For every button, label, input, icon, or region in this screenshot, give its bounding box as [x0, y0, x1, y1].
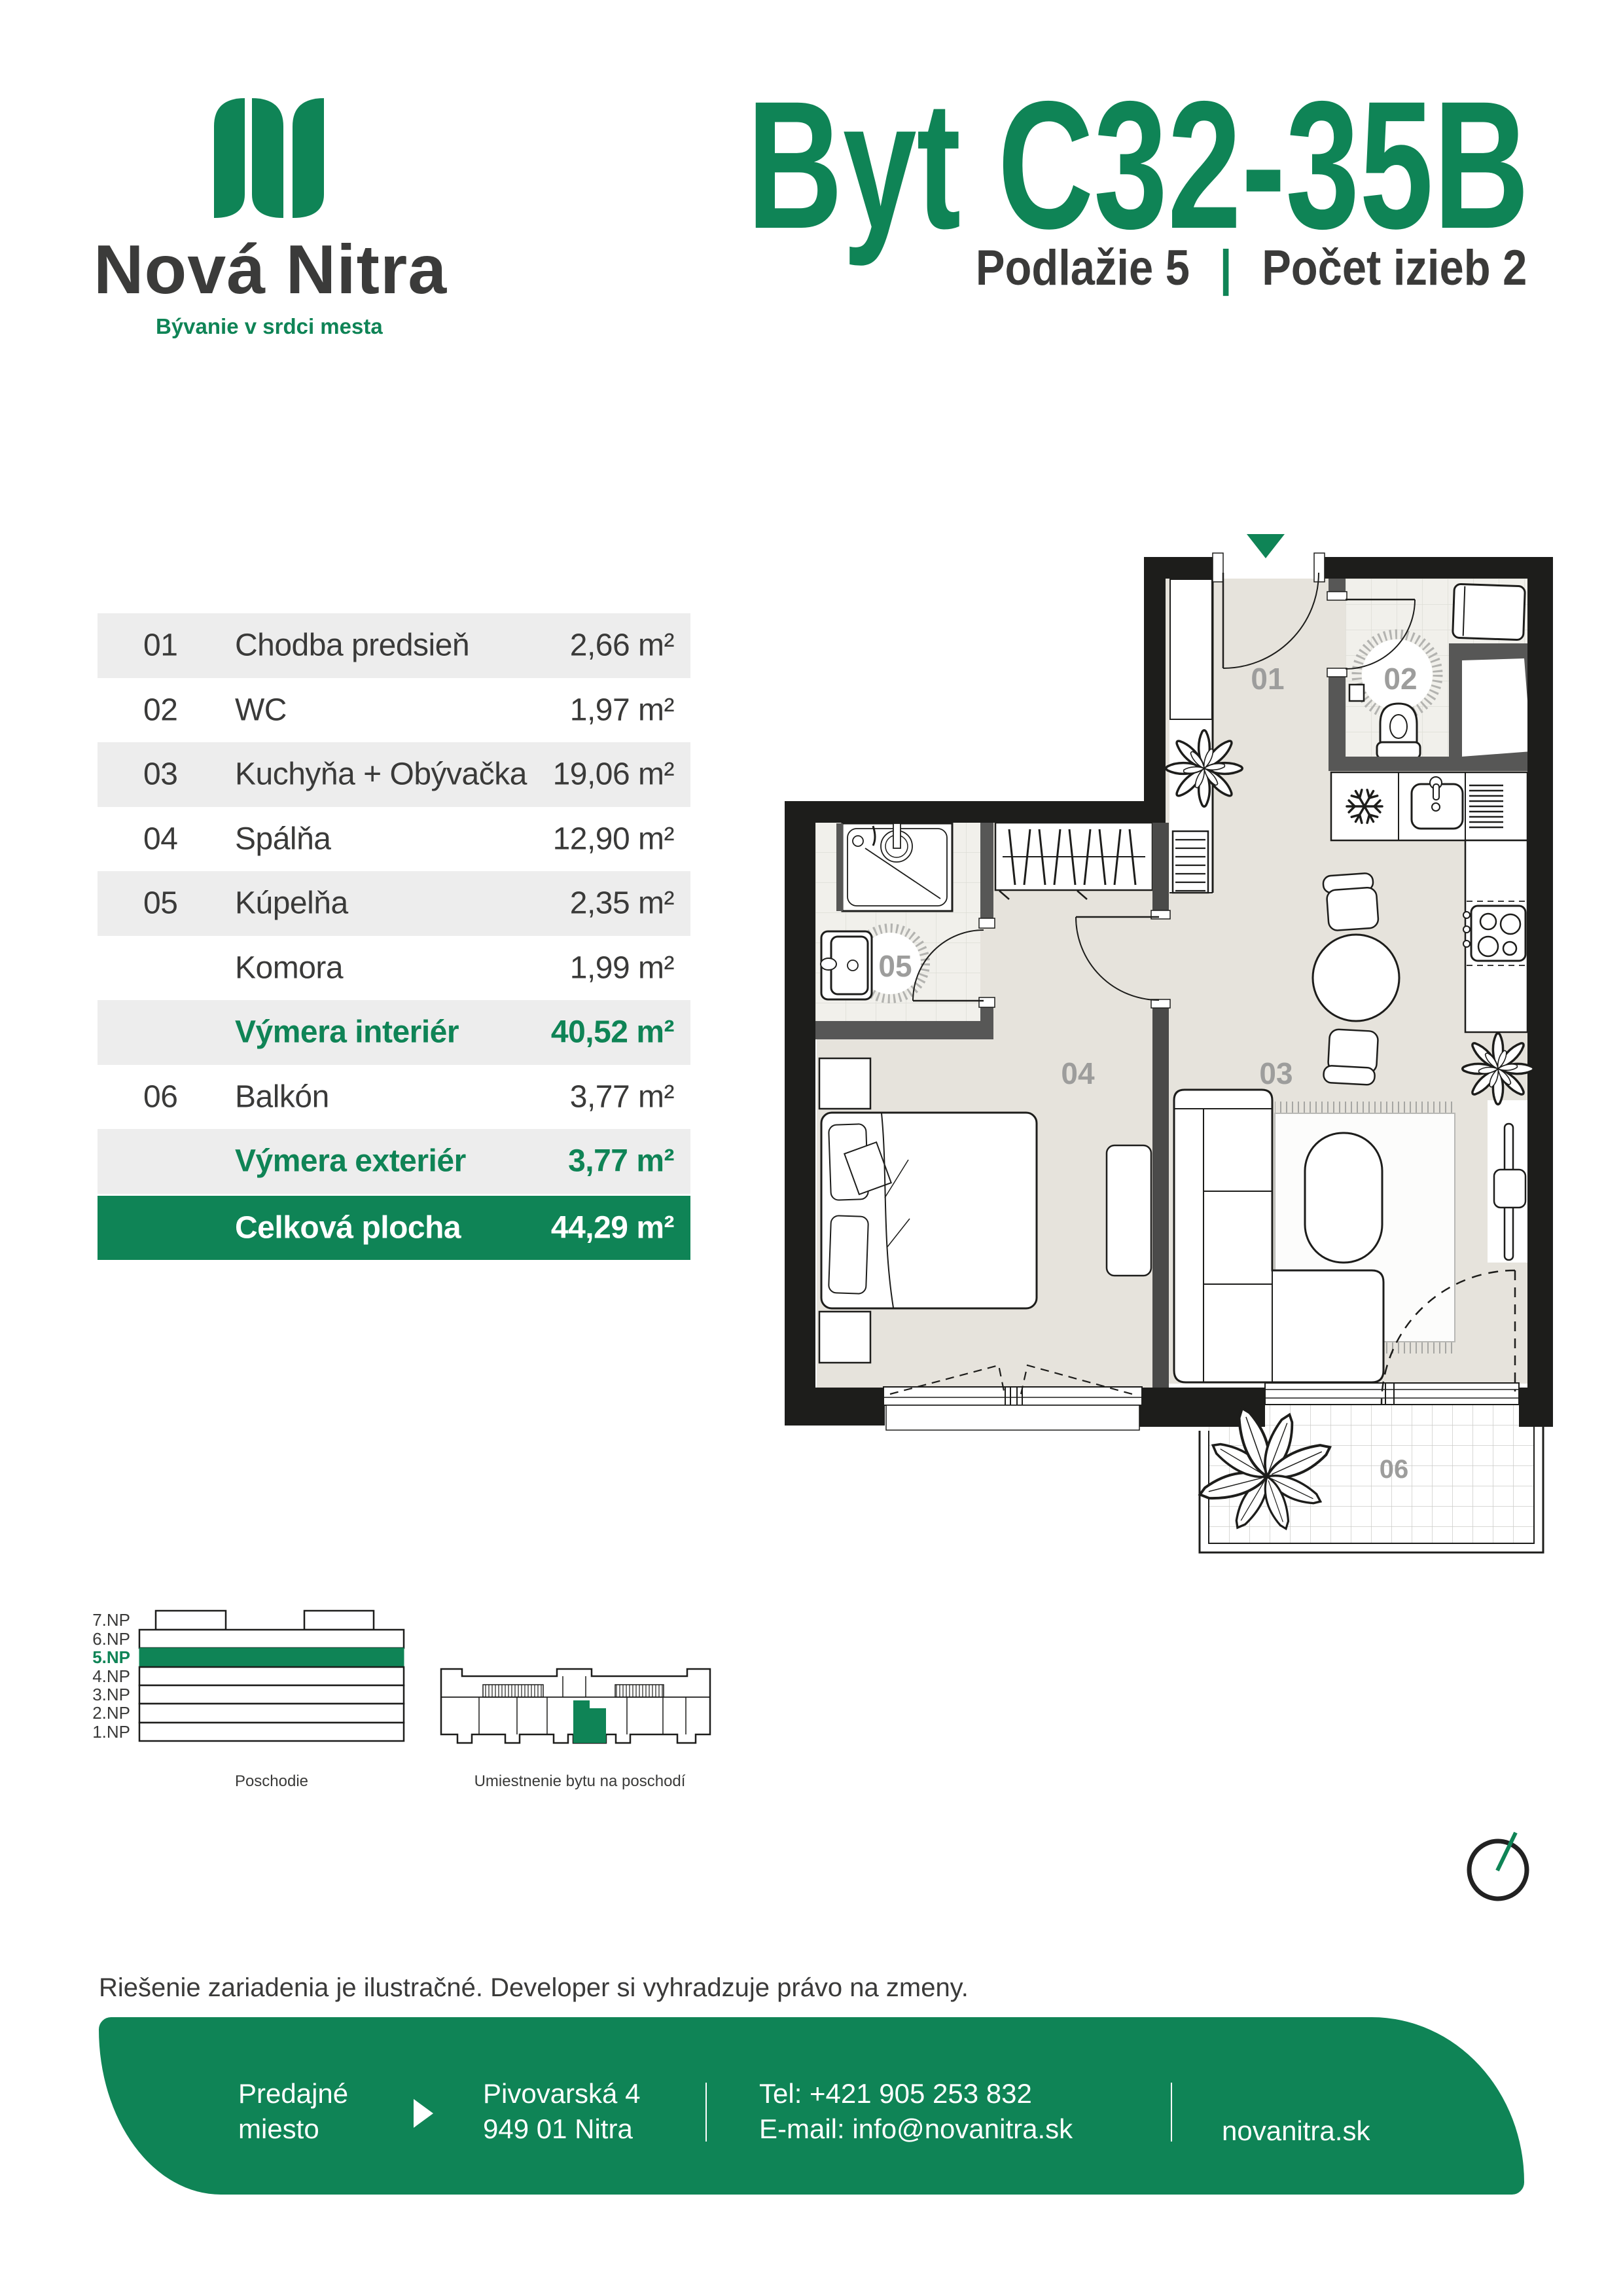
- svg-text:3.NP: 3.NP: [92, 1685, 130, 1704]
- svg-text:03: 03: [1259, 1056, 1293, 1090]
- svg-text:05: 05: [878, 949, 912, 983]
- svg-text:2.NP: 2.NP: [92, 1703, 130, 1723]
- svg-text:6.NP: 6.NP: [92, 1629, 130, 1649]
- svg-text:4.NP: 4.NP: [92, 1666, 130, 1686]
- svg-text:7.NP: 7.NP: [92, 1610, 130, 1630]
- svg-text:06: 06: [1380, 1455, 1409, 1484]
- svg-text:1.NP: 1.NP: [92, 1722, 130, 1742]
- svg-text:5.NP: 5.NP: [92, 1647, 130, 1667]
- svg-text:01: 01: [1251, 662, 1284, 696]
- svg-text:02: 02: [1383, 662, 1417, 696]
- svg-text:04: 04: [1061, 1056, 1095, 1090]
